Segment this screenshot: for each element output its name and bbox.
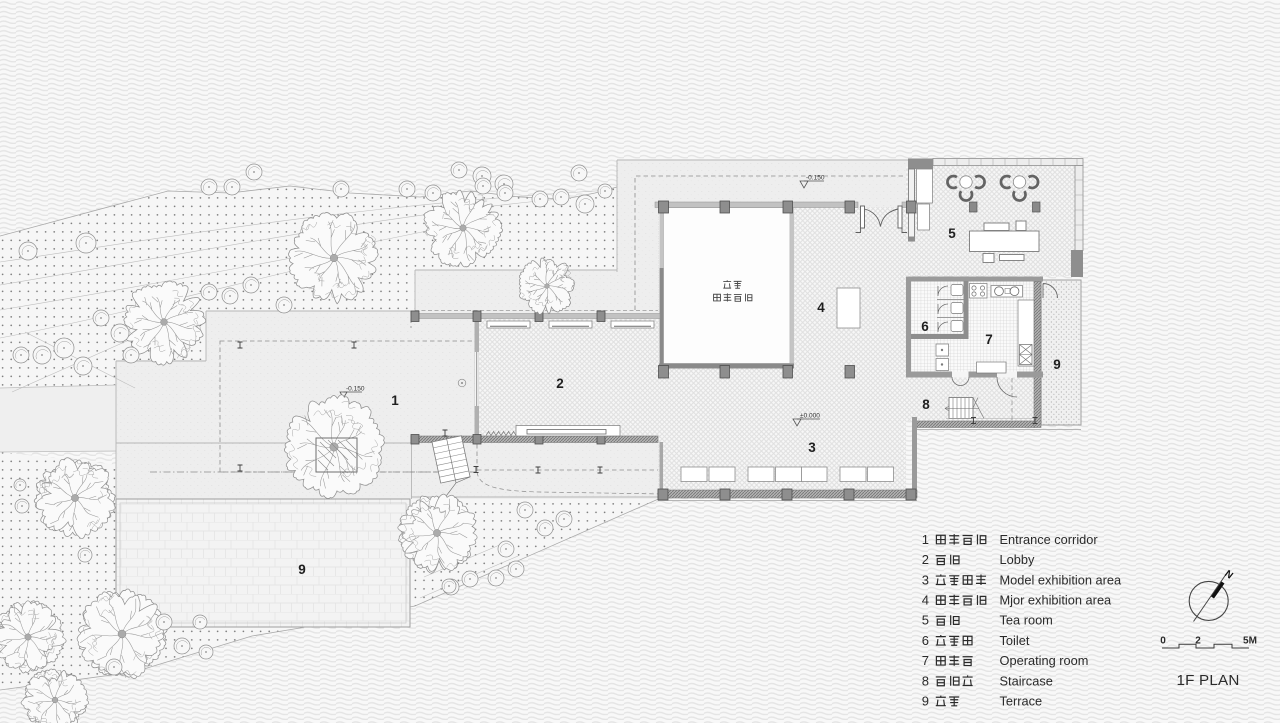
svg-text:3: 3: [808, 440, 816, 455]
svg-text:5: 5: [922, 613, 929, 628]
svg-text:Staircase: Staircase: [1000, 673, 1053, 688]
svg-text:2: 2: [922, 552, 929, 567]
svg-text:7: 7: [985, 332, 993, 347]
svg-text:Terrace: Terrace: [1000, 694, 1043, 709]
svg-text:2: 2: [556, 376, 564, 391]
svg-text:1: 1: [922, 532, 929, 547]
svg-text:-0.150: -0.150: [346, 386, 365, 393]
svg-text:7: 7: [922, 653, 929, 668]
svg-text:4: 4: [817, 300, 825, 315]
svg-text:Lobby: Lobby: [1000, 552, 1035, 567]
svg-text:8: 8: [922, 673, 929, 688]
svg-text:-0.150: -0.150: [806, 175, 825, 182]
svg-text:1: 1: [391, 393, 399, 408]
svg-text:9: 9: [922, 694, 929, 709]
svg-text:5M: 5M: [1243, 636, 1257, 647]
svg-text:2: 2: [1195, 636, 1201, 647]
svg-text:9: 9: [298, 562, 306, 577]
svg-text:8: 8: [922, 397, 930, 412]
svg-text:6: 6: [921, 319, 929, 334]
svg-text:Tea room: Tea room: [1000, 613, 1053, 628]
svg-text:Operating room: Operating room: [1000, 653, 1089, 668]
svg-text:Toilet: Toilet: [1000, 633, 1030, 648]
svg-text:5: 5: [948, 226, 956, 241]
svg-text:1F PLAN: 1F PLAN: [1176, 672, 1239, 689]
svg-text:Mjor exhibition area: Mjor exhibition area: [1000, 593, 1113, 608]
svg-text:9: 9: [1053, 357, 1061, 372]
svg-text:±0.000: ±0.000: [800, 413, 820, 420]
svg-text:3: 3: [922, 572, 929, 587]
svg-text:Model exhibition area: Model exhibition area: [1000, 572, 1123, 587]
svg-text:4: 4: [922, 593, 929, 608]
svg-text:Entrance corridor: Entrance corridor: [1000, 532, 1099, 547]
svg-text:0: 0: [1160, 636, 1166, 647]
svg-text:6: 6: [922, 633, 929, 648]
